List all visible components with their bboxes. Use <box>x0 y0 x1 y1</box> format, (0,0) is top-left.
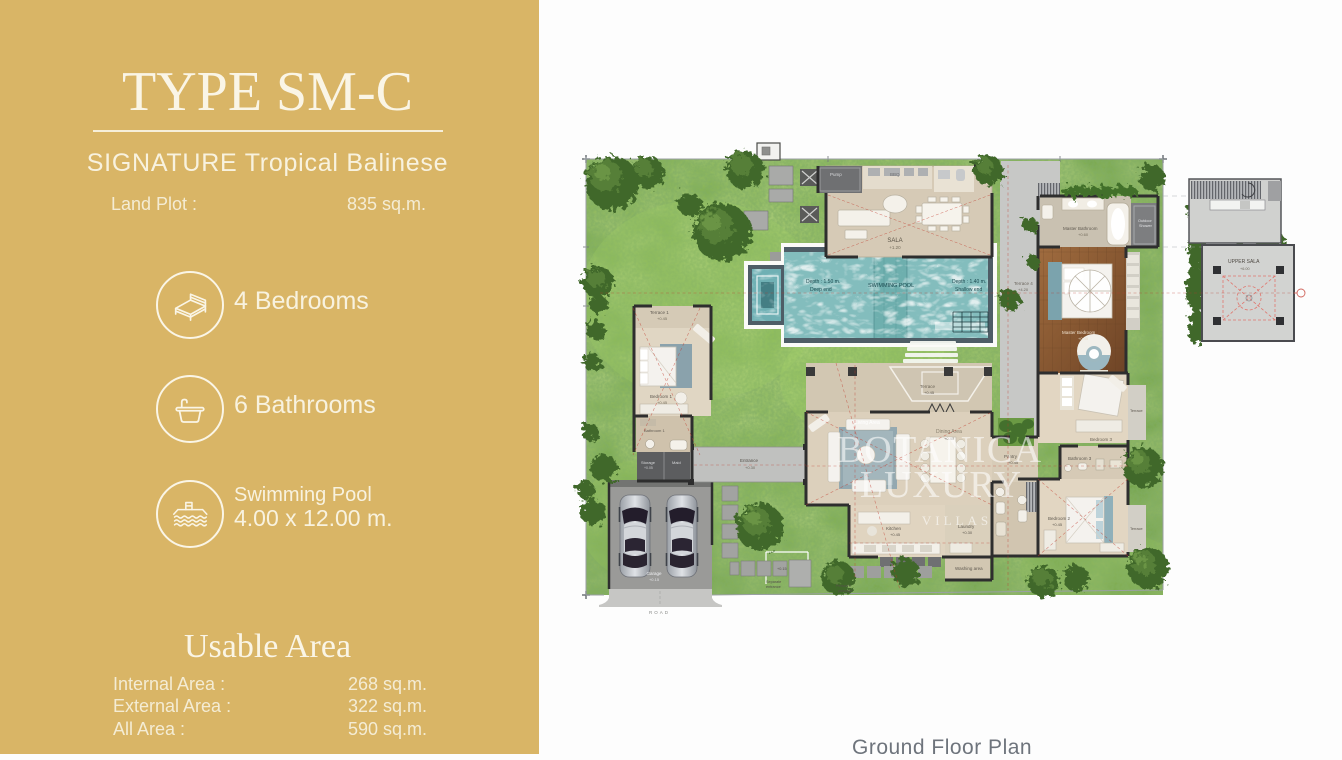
svg-text:Master Bathroom: Master Bathroom <box>1063 226 1098 231</box>
svg-text:Depth : 1.40 m.: Depth : 1.40 m. <box>952 279 986 285</box>
svg-text:Depth : 1.50 m.: Depth : 1.50 m. <box>806 279 840 285</box>
svg-text:Entrance: Entrance <box>740 458 759 463</box>
svg-text:UPPER SALA: UPPER SALA <box>1228 259 1260 265</box>
svg-text:Living Area: Living Area <box>855 420 880 426</box>
svg-text:+0.30: +0.30 <box>962 530 973 535</box>
svg-text:Separate: Separate <box>766 580 781 584</box>
svg-text:Master Bedroom: Master Bedroom <box>1062 330 1096 335</box>
svg-text:Person's: Person's <box>836 584 851 588</box>
svg-text:Shower: Shower <box>1139 224 1153 228</box>
svg-text:+0.45: +0.45 <box>890 532 901 537</box>
svg-text:+0.45: +0.45 <box>657 316 668 321</box>
svg-text:Washing area: Washing area <box>955 566 983 571</box>
svg-text:+0.60: +0.60 <box>1078 232 1089 237</box>
svg-text:Bedroom 3: Bedroom 3 <box>1090 437 1113 442</box>
svg-text:SWIMMING POOL: SWIMMING POOL <box>868 283 914 289</box>
svg-text:VILLAS: VILLAS <box>922 513 992 528</box>
svg-text:Kitchen: Kitchen <box>886 526 902 531</box>
svg-text:Pump: Pump <box>830 172 842 177</box>
svg-text:Terrace: Terrace <box>920 384 936 389</box>
svg-text:+1.20: +1.20 <box>889 245 901 250</box>
svg-text:+0.30: +0.30 <box>745 465 756 470</box>
svg-text:+6.00: +6.00 <box>1240 267 1250 271</box>
svg-text:Garage: Garage <box>646 571 662 576</box>
svg-text:BBQ: BBQ <box>890 172 900 177</box>
svg-text:+0.45: +0.45 <box>1052 522 1063 527</box>
svg-text:+0.15: +0.15 <box>649 577 660 582</box>
svg-text:+0.45: +0.45 <box>657 400 668 405</box>
svg-text:Terrace 4: Terrace 4 <box>1014 281 1033 286</box>
svg-text:+0.05: +0.05 <box>644 466 653 470</box>
svg-text:Terrace 1: Terrace 1 <box>650 310 669 315</box>
svg-text:LUXURY: LUXURY <box>860 464 1022 506</box>
svg-text:Bathroom 3: Bathroom 3 <box>1068 456 1092 461</box>
svg-text:Terrace: Terrace <box>1130 409 1143 413</box>
svg-text:Bathroom 1: Bathroom 1 <box>644 428 665 433</box>
svg-text:Shallow end: Shallow end <box>955 287 982 293</box>
svg-text:+0.45: +0.45 <box>1078 336 1089 341</box>
svg-text:+4.20: +4.20 <box>1018 287 1029 292</box>
svg-text:Outdoor: Outdoor <box>1138 219 1152 223</box>
svg-text:Bedroom 1: Bedroom 1 <box>650 394 673 399</box>
svg-text:Bedroom 2: Bedroom 2 <box>1048 516 1071 521</box>
svg-text:Terrace: Terrace <box>1130 527 1143 531</box>
svg-text:passage: passage <box>838 589 852 593</box>
svg-text:SALA: SALA <box>887 238 902 244</box>
svg-text:Maid: Maid <box>672 460 681 465</box>
svg-text:+0.45: +0.45 <box>924 390 935 395</box>
svg-text:Deep end: Deep end <box>810 287 832 293</box>
svg-text:ROAD: ROAD <box>649 610 670 615</box>
svg-text:Storage: Storage <box>641 460 656 465</box>
svg-text:+0.15: +0.15 <box>777 567 787 571</box>
svg-text:entrance: entrance <box>766 585 781 589</box>
